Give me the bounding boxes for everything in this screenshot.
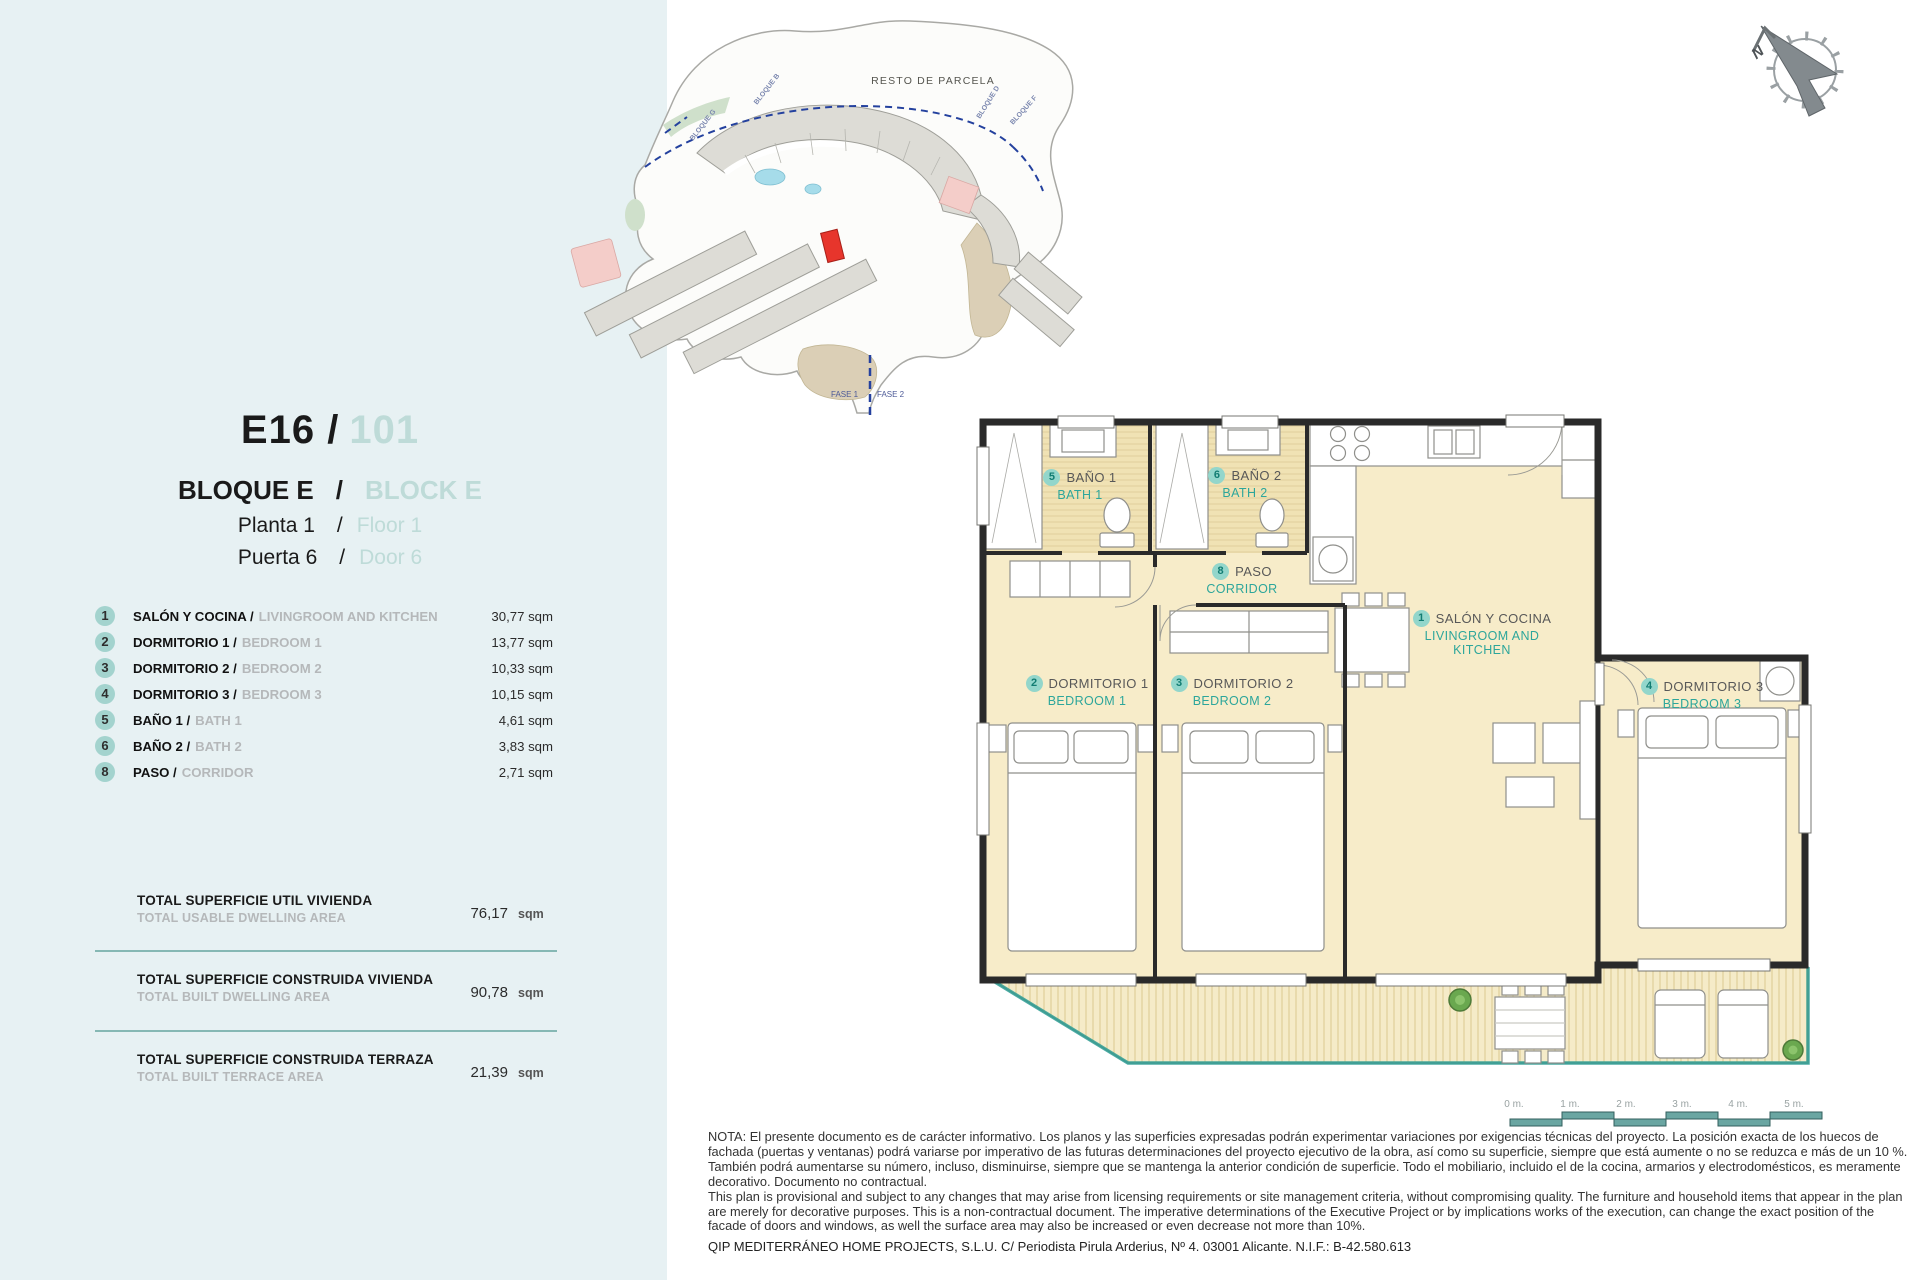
room-row: 3 DORMITORIO 2 /BEDROOM 2 10,33 sqm: [95, 655, 553, 681]
divider: [95, 950, 557, 952]
room-area: 10,15 sqm: [491, 687, 553, 702]
scale-tick-label: 1 m.: [1560, 1099, 1579, 1110]
room-row: 4 DORMITORIO 3 /BEDROOM 3 10,15 sqm: [95, 681, 553, 707]
total-built-value: 90,78 sqm: [460, 984, 570, 1001]
dining-chair: [1365, 674, 1382, 687]
pool: [805, 184, 821, 194]
title-block: E16 /101 BLOQUE E/BLOCK E Planta 1/Floor…: [40, 408, 620, 570]
unit-code: E16 /: [241, 408, 339, 452]
tv-bench: [1580, 701, 1596, 819]
door-slash: /: [339, 546, 345, 569]
scale-tick-label: 0 m.: [1504, 1099, 1523, 1110]
scale-tick-label: 3 m.: [1672, 1099, 1691, 1110]
fase-2-label: FASE 2: [877, 390, 905, 399]
note-spanish: NOTA: El presente documento es de caráct…: [708, 1130, 1908, 1190]
shower-2: [1156, 425, 1208, 549]
scale-tick-label: 5 m.: [1784, 1099, 1803, 1110]
terrace-door: [1196, 974, 1306, 986]
pillow: [1074, 731, 1128, 763]
room-number-badge: 6: [95, 736, 115, 756]
armchair: [1543, 723, 1585, 763]
window: [1799, 705, 1811, 833]
room-schedule: 1 SALÓN Y COCINA /LIVINGROOM AND KITCHEN…: [95, 603, 553, 785]
nightstand: [1328, 725, 1342, 752]
terrace-chair: [1548, 1051, 1564, 1063]
toilet-2: [1256, 533, 1288, 547]
north-compass: N: [1745, 12, 1855, 122]
dining-chair: [1365, 593, 1382, 606]
scale-tick-label: 2 m.: [1616, 1099, 1635, 1110]
apartment-floor-plan: 1SALÓN Y COCINA LIVINGROOM AND KITCHEN 2…: [950, 405, 1830, 1075]
window: [1058, 416, 1114, 428]
block-title: BLOQUE E/BLOCK E: [40, 475, 620, 506]
room-row: 6 BAÑO 2 /BATH 2 3,83 sqm: [95, 733, 553, 759]
room-area: 10,33 sqm: [491, 661, 553, 676]
room-row: 5 BAÑO 1 /BATH 1 4,61 sqm: [95, 707, 553, 733]
room-name: BAÑO 2 /BATH 2: [133, 739, 242, 754]
room-area: 2,71 sqm: [499, 765, 553, 780]
note-english: This plan is provisional and subject to …: [708, 1190, 1908, 1235]
room-number-badge: 2: [95, 632, 115, 652]
site-plan: RESTO DE PARCELA BLOQUE G BLOQUE B BLOQU…: [545, 5, 1105, 415]
terrace-door: [1026, 974, 1136, 986]
floor-line: Planta 1/Floor 1: [40, 514, 620, 538]
door-leaf: [1595, 663, 1604, 705]
room-row: 2 DORMITORIO 1 /BEDROOM 1 13,77 sqm: [95, 629, 553, 655]
fase-1-label: FASE 1: [831, 390, 859, 399]
site-plan-drawing: RESTO DE PARCELA BLOQUE G BLOQUE B BLOQU…: [545, 5, 1105, 415]
kitchen-sink: [1428, 426, 1480, 458]
block-es: BLOQUE E: [178, 475, 314, 505]
sun-lounger: [1655, 990, 1705, 1058]
pillow: [1646, 716, 1708, 748]
nightstand: [1138, 725, 1154, 752]
window: [1222, 416, 1278, 428]
green-area: [625, 199, 645, 231]
room-row: 8 PASO /CORRIDOR 2,71 sqm: [95, 759, 553, 785]
room-name: DORMITORIO 3 /BEDROOM 3: [133, 687, 322, 702]
terrace-chair: [1525, 1051, 1541, 1063]
pool: [755, 169, 785, 185]
room-area: 13,77 sqm: [491, 635, 553, 650]
armchair: [1493, 723, 1535, 763]
floor-es: Planta 1: [238, 514, 315, 537]
nightstand: [1162, 725, 1178, 752]
block-slash: /: [336, 475, 343, 505]
unit-title: E16 /101: [40, 408, 620, 453]
divider: [95, 1030, 557, 1032]
room-area: 3,83 sqm: [499, 739, 553, 754]
dining-chair: [1388, 593, 1405, 606]
resto-de-parcela-label: RESTO DE PARCELA: [871, 75, 995, 87]
floor-en: Floor 1: [357, 514, 422, 537]
window: [977, 447, 989, 525]
pillow: [1716, 716, 1778, 748]
pillow: [1190, 731, 1248, 763]
room-name: BAÑO 1 /BATH 1: [133, 713, 242, 728]
terrace-chair: [1502, 1051, 1518, 1063]
nightstand: [988, 725, 1006, 752]
terrace-door: [1638, 959, 1770, 971]
floor-slash: /: [337, 514, 343, 537]
total-terrace-value: 21,39 sqm: [460, 1064, 570, 1081]
scale-tick-label: 4 m.: [1728, 1099, 1747, 1110]
window: [977, 723, 989, 835]
room-number-badge: 1: [95, 606, 115, 626]
legal-notes: NOTA: El presente documento es de caráct…: [708, 1130, 1908, 1255]
room-name: SALÓN Y COCINA /LIVINGROOM AND KITCHEN: [133, 609, 438, 624]
floor-plan-drawing: [950, 405, 1830, 1075]
entry-door: [1506, 415, 1564, 427]
pillow: [1256, 731, 1314, 763]
sun-lounger: [1718, 990, 1768, 1058]
door-en: Door 6: [359, 546, 422, 569]
plan-sheet: E16 /101 BLOQUE E/BLOCK E Planta 1/Floor…: [0, 0, 1920, 1280]
room-number-badge: 8: [95, 762, 115, 782]
terrace-door: [1376, 974, 1566, 986]
room-name: PASO /CORRIDOR: [133, 765, 254, 780]
compass-icon: N: [1745, 12, 1855, 122]
room-name: DORMITORIO 1 /BEDROOM 1: [133, 635, 322, 650]
toilet-2: [1260, 499, 1284, 531]
room-number-badge: 3: [95, 658, 115, 678]
dining-chair: [1388, 674, 1405, 687]
pillow: [1014, 731, 1068, 763]
north-label: N: [1748, 42, 1768, 63]
door-line: Puerta 6/Door 6: [40, 546, 620, 570]
total-usable-value: 76,17 sqm: [460, 905, 570, 922]
plant-inner: [1789, 1046, 1798, 1055]
room-number-badge: 5: [95, 710, 115, 730]
company-line: QIP MEDITERRÁNEO HOME PROJECTS, S.L.U. C…: [708, 1240, 1908, 1255]
room-name: DORMITORIO 2 /BEDROOM 2: [133, 661, 322, 676]
pink-zone: [571, 238, 622, 288]
plant-inner: [1455, 995, 1465, 1005]
door-es: Puerta 6: [238, 546, 317, 569]
coffee-table: [1506, 777, 1554, 807]
room-area: 30,77 sqm: [491, 609, 553, 624]
toilet-1: [1104, 498, 1130, 532]
unit-number: 101: [349, 408, 419, 452]
room-number-badge: 4: [95, 684, 115, 704]
toilet-1: [1100, 533, 1134, 547]
room-row: 1 SALÓN Y COCINA /LIVINGROOM AND KITCHEN…: [95, 603, 553, 629]
nightstand: [1618, 710, 1634, 737]
room-area: 4,61 sqm: [499, 713, 553, 728]
block-en: BLOCK E: [365, 475, 482, 505]
